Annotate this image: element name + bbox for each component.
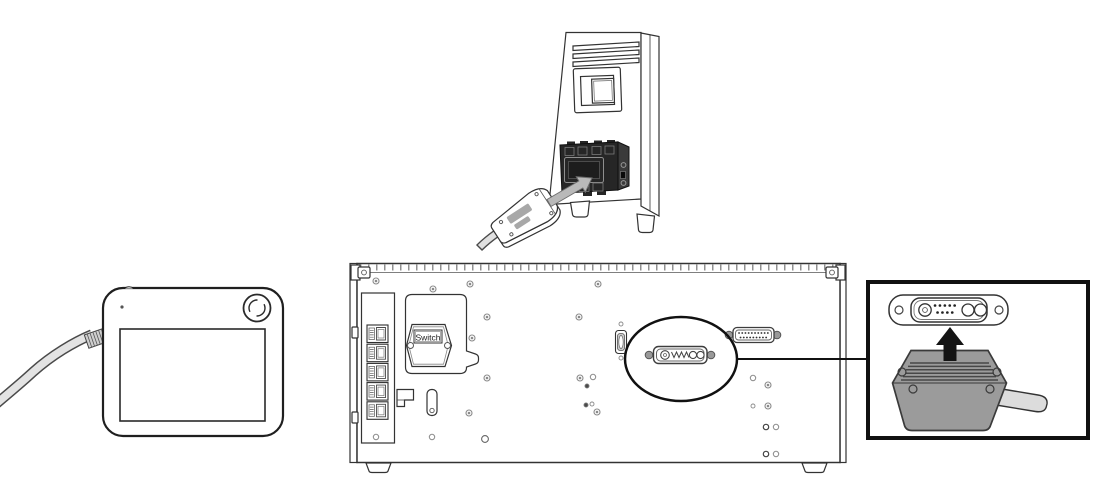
screw-icon bbox=[619, 322, 623, 326]
flange-clip bbox=[352, 412, 358, 423]
illustration-canvas: Switch bbox=[0, 0, 1097, 498]
screw-icon bbox=[773, 451, 778, 456]
panel-left-flange bbox=[350, 264, 357, 463]
screw-icon bbox=[577, 375, 583, 381]
io-block-side bbox=[618, 142, 629, 190]
screw-icon bbox=[750, 375, 755, 380]
screw-icon bbox=[763, 424, 768, 429]
screw-icon bbox=[765, 403, 771, 409]
switch-label: Switch bbox=[415, 333, 440, 343]
screw-icon bbox=[751, 404, 755, 408]
screw-icon bbox=[466, 410, 472, 416]
screw-icon bbox=[595, 281, 601, 287]
tower-foot bbox=[571, 201, 590, 217]
screw-icon bbox=[430, 286, 436, 292]
controller-rear-panel: Switch bbox=[350, 264, 866, 473]
screw-icon bbox=[429, 434, 434, 439]
screw-icon bbox=[469, 335, 475, 341]
screw-icon bbox=[484, 375, 490, 381]
controller-tower-illustration bbox=[479, 33, 659, 254]
ethernet-port bbox=[367, 402, 388, 420]
tower-foot bbox=[637, 214, 655, 233]
receptacle-screw-hole bbox=[895, 306, 903, 314]
connector-screw bbox=[645, 351, 653, 359]
connection-diagram: Switch bbox=[0, 0, 1097, 498]
vertical-slot bbox=[427, 390, 437, 416]
screw-icon bbox=[373, 278, 379, 284]
corner-bolt-left bbox=[351, 265, 370, 280]
plate-screw bbox=[408, 343, 414, 349]
screw-icon bbox=[590, 374, 595, 379]
io-block-slot bbox=[621, 172, 626, 179]
ethernet-port bbox=[367, 344, 388, 362]
screw-icon bbox=[594, 409, 600, 415]
ethernet-port bbox=[367, 363, 388, 381]
pendant-screen bbox=[120, 329, 265, 421]
detail-receptacle bbox=[889, 295, 1008, 325]
ethernet-port bbox=[367, 383, 388, 401]
panel-foot bbox=[802, 463, 827, 473]
screw-icon bbox=[763, 451, 768, 456]
plate-screw bbox=[445, 343, 451, 349]
io-plug-cable bbox=[479, 233, 497, 248]
screw-icon bbox=[584, 403, 588, 407]
screw-icon bbox=[576, 314, 582, 320]
ethernet-port bbox=[367, 325, 388, 343]
screw-icon bbox=[585, 384, 589, 388]
connector-detail-callout bbox=[868, 282, 1088, 438]
dsub-25pin-connector bbox=[725, 328, 781, 343]
screw-icon bbox=[484, 314, 490, 320]
screw-icon bbox=[467, 281, 473, 287]
screw-icon bbox=[590, 402, 594, 406]
screw-icon bbox=[765, 382, 771, 388]
pendant-cable bbox=[0, 335, 92, 405]
screw-icon bbox=[373, 434, 378, 439]
emergency-stop-button bbox=[244, 295, 271, 322]
handle-plate bbox=[573, 67, 622, 113]
receptacle-screw-hole bbox=[995, 306, 1003, 314]
panel-right-flange bbox=[840, 264, 846, 463]
screw-icon bbox=[773, 424, 778, 429]
teach-pendant bbox=[0, 287, 283, 436]
ethernet-port-strip bbox=[362, 293, 395, 443]
dsub-combo-connector bbox=[645, 347, 715, 364]
vent-slats bbox=[573, 42, 639, 67]
flange-clip bbox=[352, 327, 358, 338]
panel-foot bbox=[366, 463, 391, 473]
corner-bolt-right bbox=[826, 265, 845, 280]
screw-icon bbox=[482, 436, 489, 443]
connector-screw bbox=[707, 351, 715, 359]
pendant-led bbox=[120, 305, 123, 308]
small-video-port bbox=[616, 331, 627, 354]
screw-icon bbox=[619, 356, 623, 360]
